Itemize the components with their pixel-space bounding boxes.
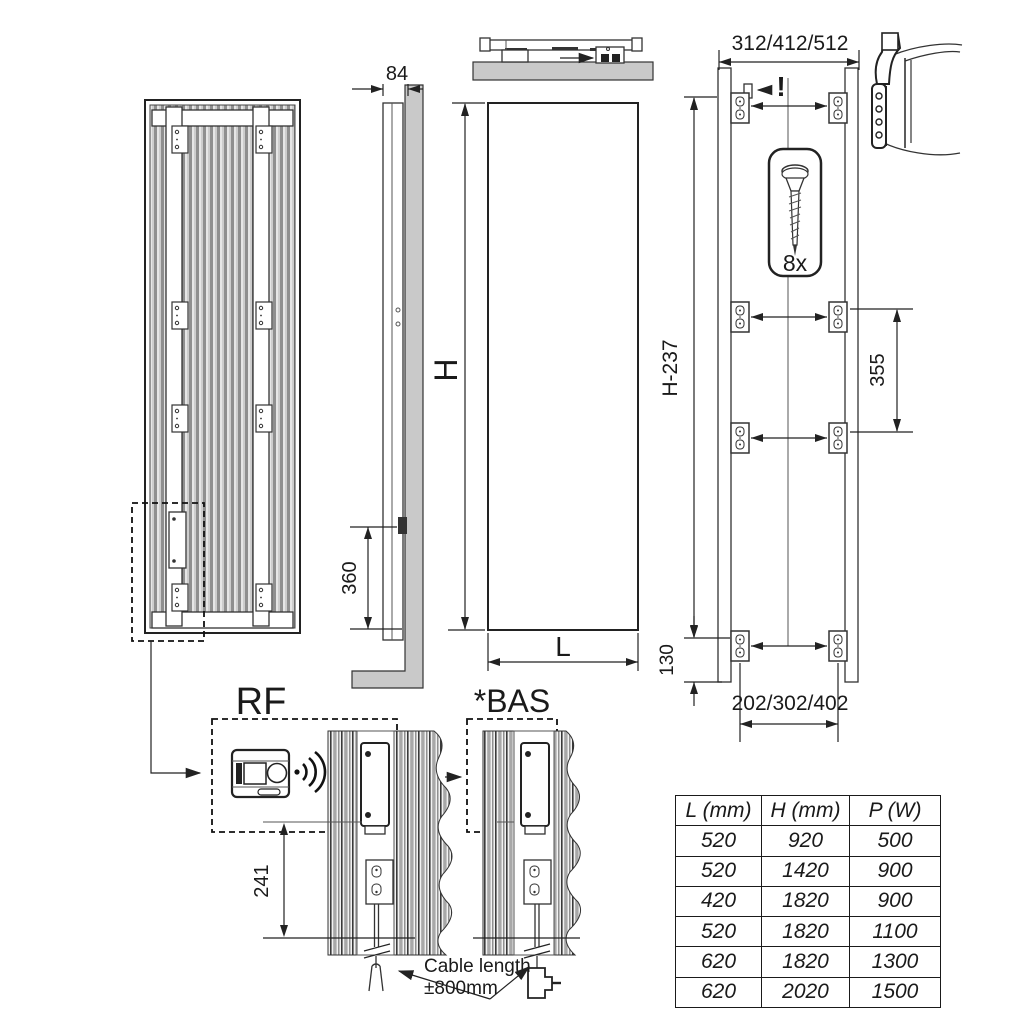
wall-bracket-icon	[829, 631, 847, 661]
bas-label: *BAS	[474, 683, 550, 719]
table-cell: 1500	[850, 977, 941, 1007]
col-header-p: P (W)	[850, 796, 941, 826]
depth-label: 84	[386, 63, 408, 85]
remote-dial	[268, 764, 287, 783]
bas-detail: *BAS	[445, 683, 581, 998]
table-cell: 1820	[762, 947, 850, 977]
table-cell: 520	[676, 826, 762, 856]
table-row: 420 1820 900	[676, 886, 941, 916]
table-row: 620 2020 1500	[676, 977, 941, 1007]
table-cell: 900	[850, 886, 941, 916]
top-span-label: 312/412/512	[732, 32, 849, 55]
wireless-signal-icon	[294, 752, 325, 792]
screw-count-badge: 8x	[769, 149, 821, 276]
power-connector	[398, 517, 407, 534]
table-cell: 1300	[850, 947, 941, 977]
screw-count-label: 8x	[783, 250, 808, 276]
wall-section	[473, 62, 653, 80]
mounting-bracket-icon	[172, 126, 188, 153]
table-cell: 920	[762, 826, 850, 856]
side-view: 84 360	[339, 63, 423, 688]
callout-leader	[151, 641, 200, 773]
dim-width-L: L	[488, 631, 638, 671]
cable-outlet-height-label: 241	[251, 864, 273, 897]
mounting-bracket-icon	[172, 302, 188, 329]
front-view: H L	[428, 103, 638, 671]
table-cell: 2020	[762, 977, 850, 1007]
table-cell: 1820	[762, 917, 850, 947]
table-cell: 520	[676, 917, 762, 947]
table-cell: 420	[676, 886, 762, 916]
dim-bracket-spacing: 355	[850, 309, 913, 432]
wall-bracket-icon	[829, 93, 847, 123]
mounting-bracket-icon	[256, 405, 272, 432]
plug-icon	[528, 968, 561, 998]
dim-height-H: H	[428, 103, 485, 630]
installation-drawing: 84 360	[0, 0, 1024, 1024]
table-cell: 620	[676, 977, 762, 1007]
table-cell: 620	[676, 947, 762, 977]
table-cell: 1820	[762, 886, 850, 916]
table-cell: 500	[850, 826, 941, 856]
table-cell: 520	[676, 856, 762, 886]
wall-bracket-icon	[731, 423, 749, 453]
rf-label: RF	[236, 681, 287, 723]
mounting-bracket-icon	[256, 302, 272, 329]
mounting-bracket-icon	[172, 584, 188, 611]
table-row: 520 1420 900	[676, 856, 941, 886]
remote-display	[244, 763, 266, 784]
mounting-bracket-icon	[172, 405, 188, 432]
control-unit-rear	[169, 512, 186, 568]
wall-bracket-detail-icon	[872, 33, 962, 155]
rf-detail: RF	[212, 681, 452, 991]
rear-view	[132, 100, 300, 773]
wall-bracket-icon	[829, 423, 847, 453]
wall-bracket-icon	[731, 302, 749, 332]
dim-cable-outlet-height: 241	[251, 823, 288, 937]
mounting-bracket-icon	[256, 126, 272, 153]
control-box-bas	[521, 743, 549, 826]
table-row: 520 1820 1100	[676, 917, 941, 947]
wall-mount-view: 312/412/512 !	[657, 32, 962, 742]
table-row: 620 1820 1300	[676, 947, 941, 977]
dim-bracket-span: 202/302/402	[732, 663, 849, 742]
warning-exclamation: !	[776, 71, 785, 102]
table-header-row: L (mm) H (mm) P (W)	[676, 796, 941, 826]
spec-table: L (mm) H (mm) P (W) 520 920 500 520 1420…	[675, 795, 937, 1008]
table-row: 520 920 500	[676, 826, 941, 856]
width-label: L	[555, 631, 571, 662]
bottom-offset-label: 130	[657, 644, 678, 676]
table-cell: 900	[850, 856, 941, 886]
cable-note-line2: ±800mm	[424, 978, 498, 999]
height-label: H	[428, 358, 464, 381]
top-view	[473, 38, 653, 80]
wall-bracket-icon	[829, 302, 847, 332]
table-cell: 1420	[762, 856, 850, 886]
bare-wire-icon	[369, 964, 383, 991]
wall-bracket-icon	[731, 631, 749, 661]
wall-height-label: H-237	[659, 339, 682, 396]
col-header-h: H (mm)	[762, 796, 850, 826]
mounting-bracket-icon	[256, 584, 272, 611]
bracket-spacing-label: 355	[867, 353, 889, 386]
radiator-panel	[488, 103, 638, 630]
cable-note: Cable length ±800mm	[399, 956, 531, 999]
wall-bracket-icon	[731, 93, 749, 123]
bracket-section-left	[502, 50, 528, 62]
control-box-rf	[361, 743, 389, 826]
dim-bottom-offset: 130	[657, 616, 722, 706]
bracket-span-label: 202/302/402	[732, 692, 849, 715]
remote-control-icon	[232, 750, 289, 797]
table-cell: 1100	[850, 917, 941, 947]
cable-note-line1: Cable length	[424, 956, 531, 977]
col-header-l: L (mm)	[676, 796, 762, 826]
dim-top-span: 312/412/512	[719, 32, 859, 70]
outlet-height-label: 360	[339, 561, 361, 594]
